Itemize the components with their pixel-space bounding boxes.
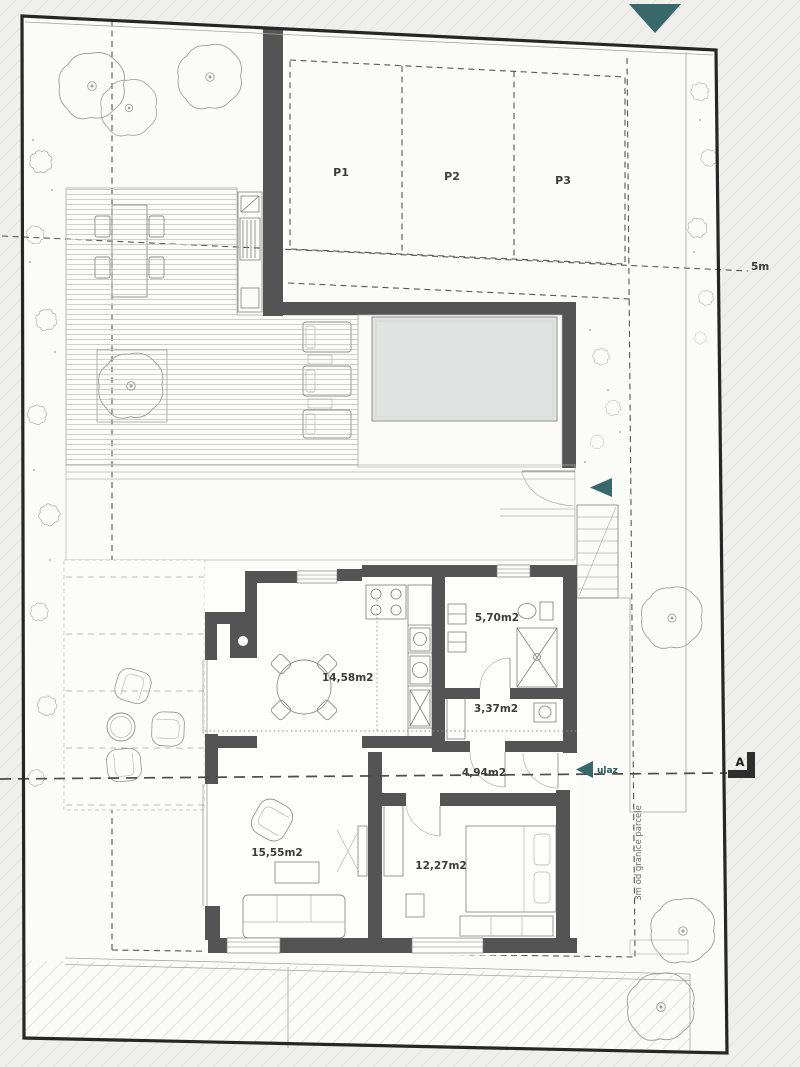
room-label-living: 15,55m2 [251, 847, 302, 859]
parking-stall-label-p1: P1 [333, 166, 349, 179]
site-plan: P1 P2 P3 [0, 0, 800, 1067]
room-label-hallway: 4,94m2 [462, 767, 506, 779]
distance-5m-label: 5m [751, 261, 769, 273]
house-floor [205, 565, 577, 955]
parking-stall-label-p2: P2 [444, 170, 460, 183]
pool [372, 317, 557, 421]
room-label-bedroom: 12,27m2 [415, 860, 466, 872]
house: 14,58m2 5,70m2 3,37m2 4,94m2 15,55m2 12,… [203, 565, 577, 955]
room-label-wc: 3,37m2 [474, 703, 518, 715]
column [238, 636, 248, 646]
entrance-label: ulaz [597, 766, 618, 776]
pergola-terrace [64, 560, 205, 810]
section-marker-bar [728, 770, 755, 778]
kitchen-stove [366, 585, 406, 619]
parking-stall-label-p3: P3 [555, 174, 571, 187]
room-label-dining: 14,58m2 [322, 672, 373, 684]
room-label-bathroom: 5,70m2 [475, 612, 519, 624]
setback-note: 3m od granice parcele [634, 805, 644, 901]
section-marker-a: A [736, 755, 745, 769]
